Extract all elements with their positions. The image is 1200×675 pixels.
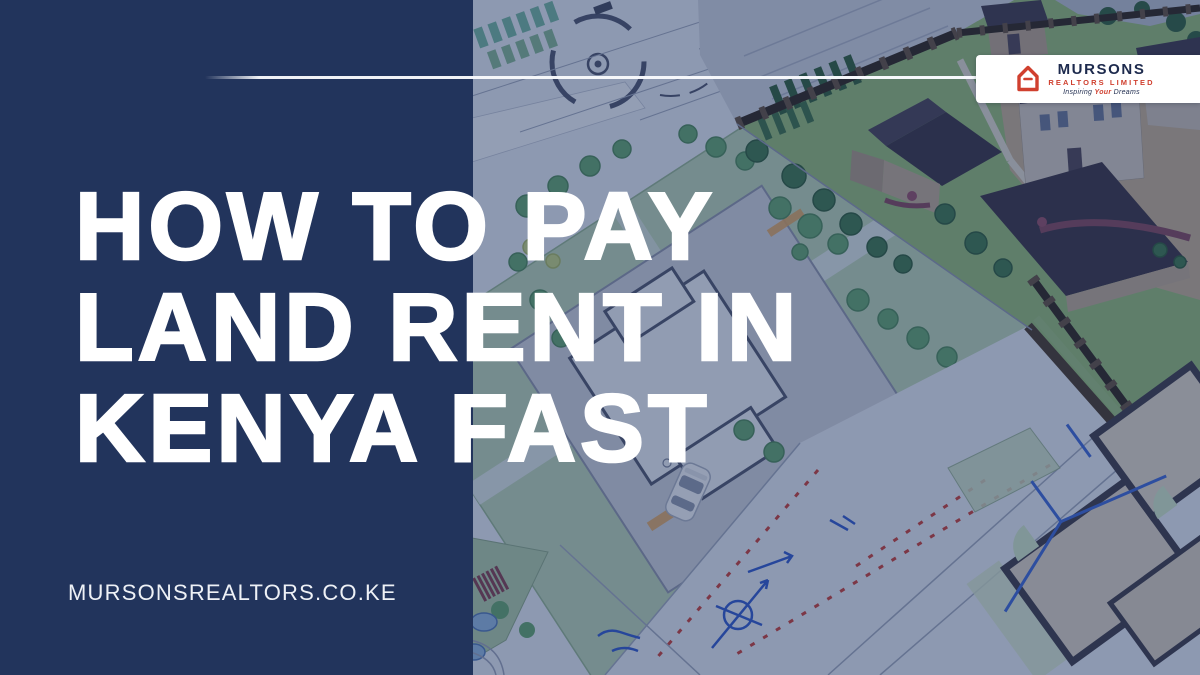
logo-subtitle: REALTORS LIMITED [1048, 78, 1154, 87]
logo-tagline: Inspiring Your Dreams [1063, 89, 1140, 97]
title-line-3: KENYA FAST [75, 378, 800, 479]
logo-box: MURSONS REALTORS LIMITED Inspiring Your … [976, 55, 1200, 103]
logo-name: MURSONS [1058, 62, 1146, 77]
title-line-2: LAND RENT IN [75, 277, 800, 378]
logo-text-block: MURSONS REALTORS LIMITED Inspiring Your … [1048, 62, 1154, 97]
accent-line [205, 76, 977, 79]
website-url: MURSONSREALTORS.CO.KE [68, 580, 397, 606]
blog-banner: HOW TO PAY LAND RENT IN KENYA FAST MURSO… [0, 0, 1200, 675]
house-icon [1015, 64, 1041, 94]
title-line-1: HOW TO PAY [75, 176, 800, 277]
tagline-highlight: Your [1094, 89, 1111, 96]
page-title: HOW TO PAY LAND RENT IN KENYA FAST [75, 176, 800, 479]
